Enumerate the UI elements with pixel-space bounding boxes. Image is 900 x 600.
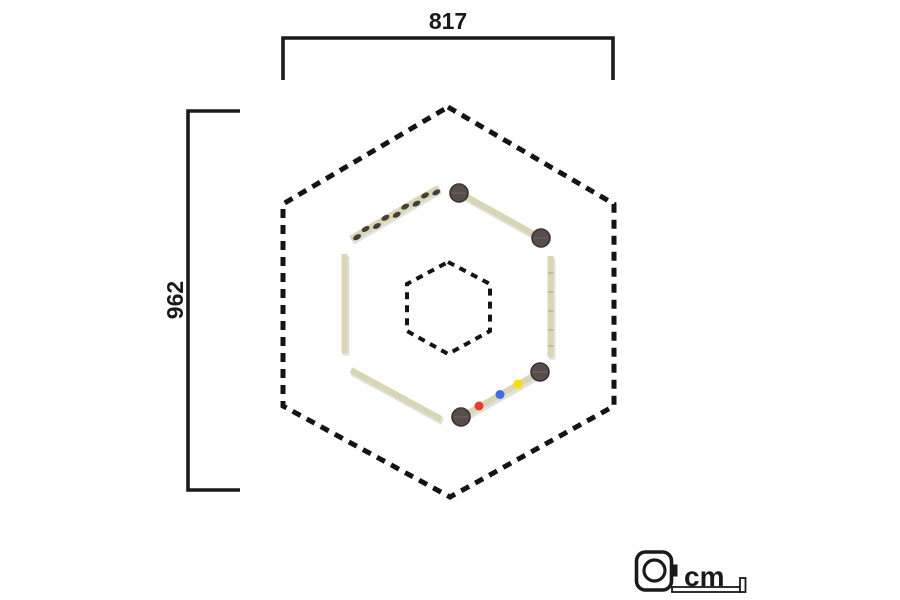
beam-plank — [351, 370, 441, 419]
balance-beam-lower-left — [351, 370, 441, 419]
unit-legend: cm — [637, 552, 746, 592]
balance-beam-upper-left — [351, 188, 441, 241]
diagram-canvas: 817 962 — [0, 0, 900, 600]
balance-beam-right — [548, 256, 554, 357]
width-dimension: 817 — [283, 8, 613, 80]
red-dot-marker — [475, 402, 484, 411]
blue-dot-marker — [496, 390, 505, 399]
height-dimension-bracket — [188, 111, 240, 490]
unit-label: cm — [684, 561, 724, 592]
beam-plank — [460, 193, 541, 238]
yellow-dot-marker — [514, 380, 523, 389]
width-dimension-label: 817 — [429, 8, 467, 34]
balance-beam-lower-right — [452, 363, 549, 426]
width-dimension-bracket — [283, 38, 613, 80]
tape-reel — [644, 560, 665, 581]
inner-boundary-hexagon — [407, 262, 490, 354]
tape-lock-tab — [672, 565, 678, 577]
outer-boundary-hexagon — [283, 107, 614, 497]
height-dimension: 962 — [162, 111, 240, 490]
balance-beam-upper-right — [450, 184, 550, 247]
tape-hook — [740, 578, 746, 592]
height-dimension-label: 962 — [162, 281, 188, 319]
hexagonal-balance-course-top-view: 817 962 — [0, 0, 900, 600]
